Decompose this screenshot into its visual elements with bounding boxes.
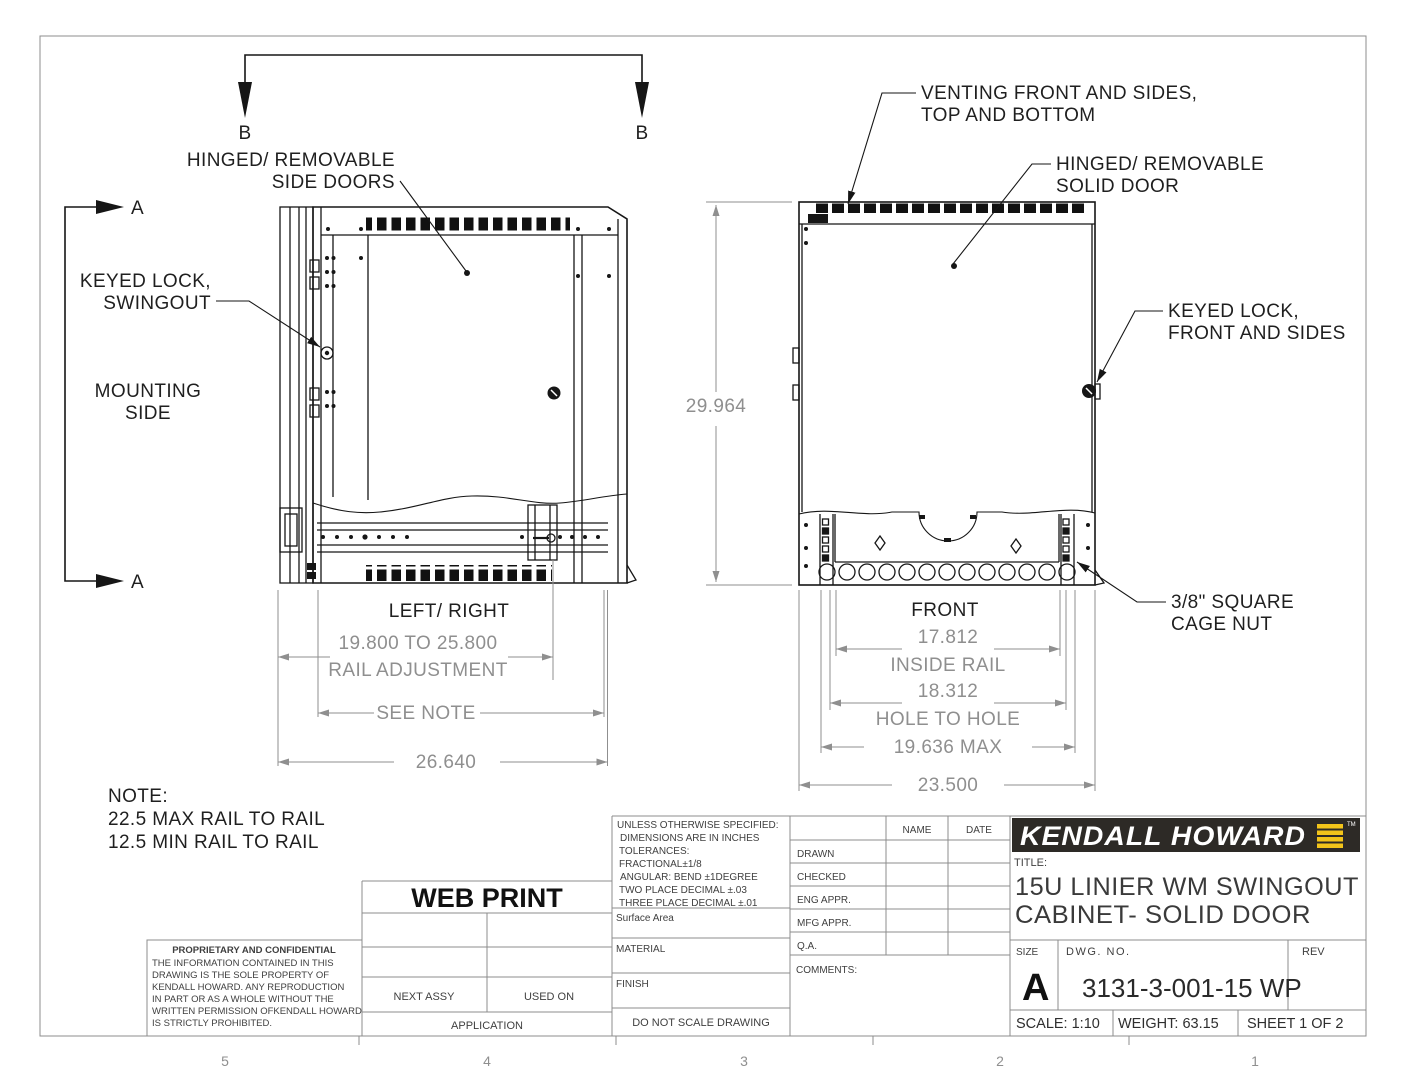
dim-max-rail: 19.636 MAX [894, 737, 1003, 758]
sheet-value: SHEET 1 OF 2 [1247, 1016, 1343, 1032]
dwg-no-label: DWG. NO. [1066, 946, 1131, 958]
size-value: A [1022, 967, 1049, 1009]
drawn-label: DRAWN [797, 849, 834, 860]
brand-tm: TM [1347, 822, 1356, 828]
keyed-lock-swingout-line2: SWINGOUT [103, 293, 211, 314]
spec-line5: ANGULAR: BEND ±1DEGREE [620, 872, 758, 883]
front-view-drawing [793, 202, 1104, 585]
dim-rail-adjustment-value: 19.800 TO 25.800 [339, 633, 498, 654]
title-label: TITLE: [1014, 857, 1047, 869]
spec-line6: TWO PLACE DECIMAL ±.03 [619, 885, 747, 896]
dwg-no-value: 3131-3-001-15 WP [1082, 973, 1302, 1003]
dimension-texts: 29.964 19.800 TO 25.800 RAIL ADJUSTMENT … [328, 396, 1020, 796]
dim-depth: 26.640 [416, 752, 477, 773]
zone-4: 4 [483, 1053, 491, 1069]
side-top-vent-row [366, 216, 570, 232]
dim-hole-to-hole-value: 18.312 [918, 681, 979, 702]
approval-table: NAME DATE DRAWN CHECKED ENG APPR. MFG AP… [796, 825, 992, 976]
section-b-marker [238, 55, 649, 118]
proprietary-line: KENDALL HOWARD. ANY REPRODUCTION [152, 982, 344, 993]
keyed-lock-front-line1: KEYED LOCK, [1168, 301, 1299, 322]
spec-line1: UNLESS OTHERWISE SPECIFIED: [617, 820, 779, 831]
surface-area-label: Surface Area [616, 913, 674, 924]
side-bottom-vent-row [366, 565, 552, 581]
hinged-solid-door-line2: SOLID DOOR [1056, 176, 1179, 197]
tolerance-block: UNLESS OTHERWISE SPECIFIED: DIMENSIONS A… [616, 820, 779, 1029]
keyed-lock-front-line2: FRONT AND SIDES [1168, 323, 1346, 344]
zone-1: 1 [1251, 1053, 1259, 1069]
dim-inside-rail-value: 17.812 [918, 627, 979, 648]
qa-label: Q.A. [797, 941, 817, 952]
rev-label: REV [1302, 946, 1325, 958]
front-bottom-holes [819, 564, 1075, 580]
proprietary-heading: PROPRIETARY AND CONFIDENTIAL [172, 945, 336, 956]
spec-line3: TOLERANCES: [619, 846, 689, 857]
spec-line7: THREE PLACE DECIMAL ±.01 [619, 898, 758, 909]
date-header: DATE [966, 825, 992, 836]
note-line1: 22.5 MAX RAIL TO RAIL [108, 809, 325, 830]
cage-nut-line2: CAGE NUT [1171, 614, 1272, 635]
proprietary-line: THE INFORMATION CONTAINED IN THIS [152, 958, 334, 969]
dim-see-note: SEE NOTE [376, 703, 475, 724]
hinged-solid-door-line1: HINGED/ REMOVABLE [1056, 154, 1264, 175]
section-b-label-right: B [635, 123, 648, 144]
weight-value: WEIGHT: 63.15 [1118, 1016, 1219, 1032]
zone-ruler: 5 4 3 2 1 [221, 1053, 1259, 1069]
venting-line1: VENTING FRONT AND SIDES, [921, 83, 1197, 104]
scale-value: SCALE: 1:10 [1016, 1016, 1100, 1032]
proprietary-notice: PROPRIETARY AND CONFIDENTIAL THE INFORMA… [152, 945, 362, 1029]
side-rail-screws [321, 534, 600, 539]
mounting-side-line1: MOUNTING [95, 381, 202, 402]
dim-rail-adjustment-label: RAIL ADJUSTMENT [328, 660, 508, 681]
dim-overall-width: 23.500 [918, 775, 979, 796]
application-label: APPLICATION [451, 1020, 523, 1032]
drawing-sheet: 5 4 3 2 1 B B A A [0, 0, 1408, 1088]
dim-height: 29.964 [686, 396, 747, 417]
note-line2: 12.5 MIN RAIL TO RAIL [108, 832, 319, 853]
comments-label: COMMENTS: [796, 965, 857, 976]
web-print-stamp: WEB PRINT [411, 883, 563, 913]
mfg-appr-label: MFG APPR. [797, 918, 851, 929]
note-heading: NOTE: [108, 786, 168, 807]
eng-appr-label: ENG APPR. [797, 895, 851, 906]
dim-inside-rail-label: INSIDE RAIL [890, 655, 1005, 676]
hinged-side-doors-line1: HINGED/ REMOVABLE [187, 150, 395, 171]
next-assy-label: NEXT ASSY [394, 991, 456, 1003]
mounting-side-line2: SIDE [125, 403, 171, 424]
keyed-lock-swingout-line1: KEYED LOCK, [80, 271, 211, 292]
zone-5: 5 [221, 1053, 229, 1069]
section-a-label-top: A [131, 198, 144, 219]
side-view-label: LEFT/ RIGHT [389, 601, 510, 622]
brand-logo-text: KENDALL HOWARD [1020, 821, 1306, 851]
hinged-side-doors-line2: SIDE DOORS [272, 172, 395, 193]
zone-2: 2 [996, 1053, 1004, 1069]
proprietary-line: DRAWING IS THE SOLE PROPERTY OF [152, 970, 329, 981]
checked-label: CHECKED [797, 872, 846, 883]
section-b-label-left: B [238, 123, 251, 144]
used-on-label: USED ON [524, 991, 574, 1003]
note-block: NOTE: 22.5 MAX RAIL TO RAIL 12.5 MIN RAI… [108, 786, 325, 853]
cage-nut-line1: 3/8" SQUARE [1171, 592, 1294, 613]
dim-hole-to-hole-label: HOLE TO HOLE [876, 709, 1021, 730]
side-view-drawing [280, 207, 636, 583]
brand-block: KENDALL HOWARD TM [1012, 818, 1360, 852]
spec-line4: FRACTIONAL±1/8 [619, 859, 702, 870]
do-not-scale-label: DO NOT SCALE DRAWING [632, 1017, 770, 1029]
drawing-title-line2: CABINET- SOLID DOOR [1015, 901, 1311, 929]
section-a-label-bottom: A [131, 572, 144, 593]
proprietary-line: IS STRICTLY PROHIBITED. [152, 1018, 272, 1029]
size-label: SIZE [1016, 947, 1039, 958]
venting-line2: TOP AND BOTTOM [921, 105, 1096, 126]
proprietary-line: IN PART OR AS A WHOLE WITHOUT THE [152, 994, 334, 1005]
drawing-title-line1: 15U LINIER WM SWINGOUT [1015, 873, 1359, 901]
front-top-vent-row [812, 204, 1086, 214]
drawing-page: 5 4 3 2 1 B B A A [0, 0, 1408, 1088]
proprietary-line: WRITTEN PERMISSION OFKENDALL HOWARD [152, 1006, 362, 1017]
material-label: MATERIAL [616, 944, 666, 955]
callout-texts: HINGED/ REMOVABLE SIDE DOORS KEYED LOCK,… [80, 83, 1346, 635]
spec-line2: DIMENSIONS ARE IN INCHES [620, 833, 760, 844]
front-view-label: FRONT [911, 600, 978, 621]
front-hinge-screws [804, 227, 1090, 568]
zone-3: 3 [740, 1053, 748, 1069]
name-header: NAME [903, 825, 932, 836]
finish-label: FINISH [616, 979, 649, 990]
